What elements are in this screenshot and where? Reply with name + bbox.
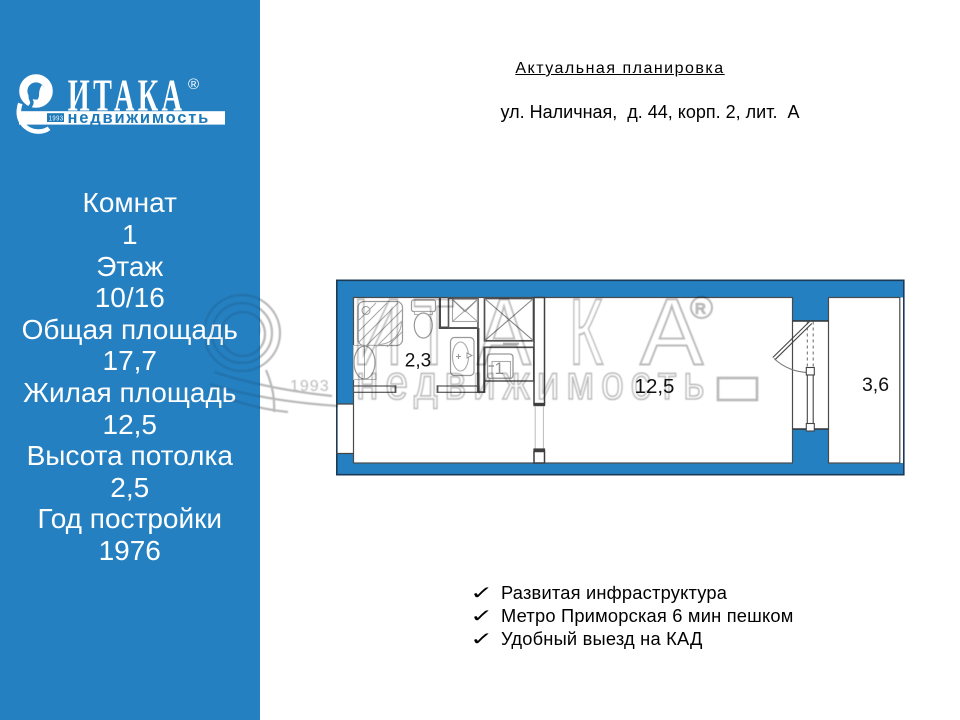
svg-text:1993: 1993	[49, 115, 64, 123]
svg-text:R: R	[695, 301, 706, 318]
svg-text:3,6: 3,6	[862, 374, 889, 396]
svg-text:недвижимость: недвижимость	[356, 357, 711, 410]
svg-text:ИТАКА: ИТАКА	[68, 71, 186, 121]
svg-text:®: ®	[188, 76, 199, 93]
